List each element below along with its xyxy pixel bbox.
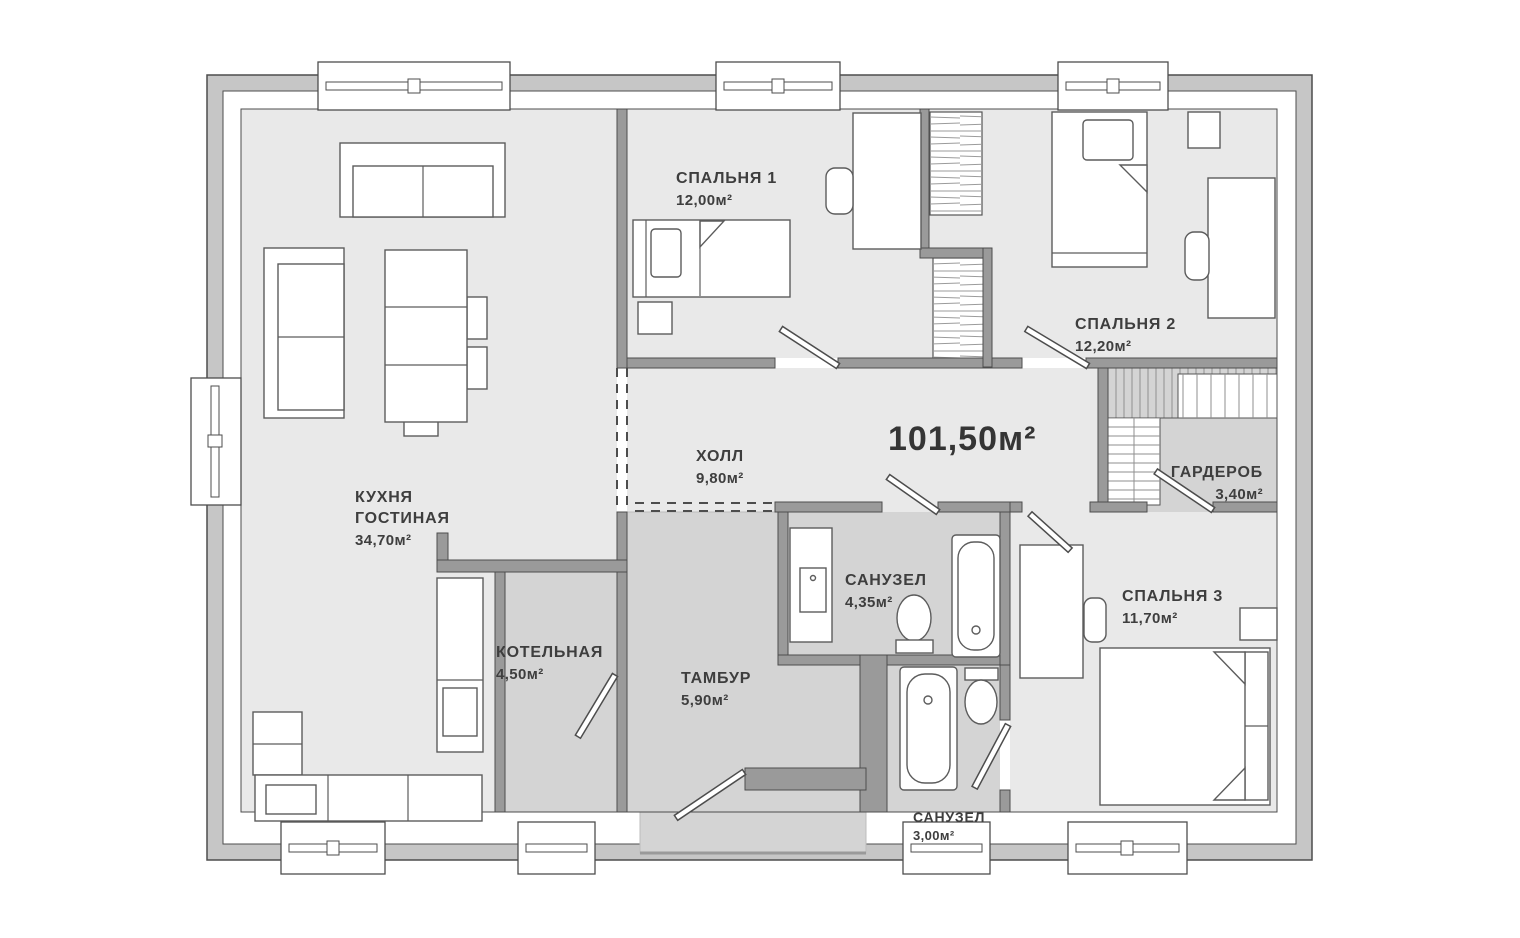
- room-name: САНУЗЕЛ: [913, 809, 985, 825]
- nightstand-bedroom-1: [638, 302, 672, 334]
- room-name: КОТЕЛЬНАЯ: [496, 644, 603, 661]
- bed-bedroom-2: [1052, 112, 1147, 267]
- room-area: 9,80м²: [696, 468, 744, 489]
- floor-plan-page: КУХНЯ ГОСТИНАЯ 34,70м² СПАЛЬНЯ 1 12,00м²…: [0, 0, 1520, 938]
- kitchen-counter: [255, 775, 482, 821]
- room-label-hall: ХОЛЛ 9,80м²: [696, 425, 744, 510]
- room-area: 3,40м²: [1120, 484, 1263, 505]
- room-area: 4,35м²: [845, 592, 927, 613]
- room-label-bathroom-2: САНУЗЕЛ 3,00м²: [913, 790, 985, 863]
- room-label-bedroom-1: СПАЛЬНЯ 1 12,00м²: [676, 147, 777, 232]
- room-name: ТАМБУР: [681, 670, 751, 687]
- room-name: ХОЛЛ: [696, 448, 744, 465]
- room-name: ГАРДЕРОБ: [1171, 464, 1263, 481]
- window-bedroom-2: [1058, 62, 1168, 110]
- window-bedroom-1: [716, 62, 840, 110]
- sofa-large: [340, 143, 505, 217]
- room-label-kitchen-living: КУХНЯ ГОСТИНАЯ 34,70м²: [355, 466, 450, 572]
- shelf-bedroom-3: [1240, 608, 1277, 640]
- window-boiler-room: [518, 822, 595, 874]
- bathtub-bathroom-2: [900, 667, 957, 790]
- total-area-label: 101,50м²: [888, 420, 1036, 459]
- room-label-boiler-room: КОТЕЛЬНАЯ 4,50м²: [496, 621, 603, 706]
- room-label-bedroom-3: СПАЛЬНЯ 3 11,70м²: [1122, 565, 1223, 650]
- chair-bedroom-1: [826, 168, 853, 214]
- kitchen-left-cabinet: [253, 712, 302, 775]
- closet-bedroom-1: [933, 258, 984, 360]
- sofa-corner: [264, 248, 344, 418]
- desk-bedroom-1: [853, 113, 921, 249]
- toilet-bathroom-2: [965, 668, 998, 724]
- room-area: 34,70м²: [355, 530, 450, 551]
- nightstand-bedroom-2: [1188, 112, 1220, 148]
- floor-plan-drawing: [0, 0, 1520, 938]
- room-area: 5,90м²: [681, 690, 751, 711]
- room-name: СПАЛЬНЯ 1: [676, 170, 777, 187]
- window-kitchen-bottom: [281, 822, 385, 874]
- window-bedroom-3: [1068, 822, 1187, 874]
- chair-bedroom-2: [1185, 232, 1209, 280]
- room-name: САНУЗЕЛ: [845, 572, 927, 589]
- kitchen-tall-unit: [437, 578, 483, 752]
- room-label-bedroom-2: СПАЛЬНЯ 2 12,20м²: [1075, 293, 1176, 378]
- washer-bathroom-1: [790, 528, 832, 642]
- bathtub-bathroom-1: [952, 535, 1000, 657]
- room-area: 4,50м²: [496, 664, 603, 685]
- closet-bedroom-2: [930, 112, 982, 215]
- desk-bedroom-2: [1208, 178, 1275, 318]
- room-area: 12,00м²: [676, 190, 777, 211]
- bed-bedroom-3: [1100, 648, 1270, 805]
- room-name: КУХНЯ ГОСТИНАЯ: [355, 489, 450, 527]
- window-kitchen-top: [318, 62, 510, 110]
- room-label-vestibule: ТАМБУР 5,90м²: [681, 647, 751, 732]
- room-label-bathroom-1: САНУЗЕЛ 4,35м²: [845, 549, 927, 634]
- room-label-wardrobe: ГАРДЕРОБ 3,40м²: [1120, 441, 1263, 526]
- chair-bedroom-3: [1084, 598, 1106, 642]
- room-area: 11,70м²: [1122, 608, 1223, 629]
- room-area: 3,00м²: [913, 827, 985, 845]
- room-name: СПАЛЬНЯ 2: [1075, 316, 1176, 333]
- desk-bedroom-3: [1020, 545, 1083, 678]
- room-name: СПАЛЬНЯ 3: [1122, 588, 1223, 605]
- window-kitchen-left: [191, 378, 241, 505]
- room-area: 12,20м²: [1075, 336, 1176, 357]
